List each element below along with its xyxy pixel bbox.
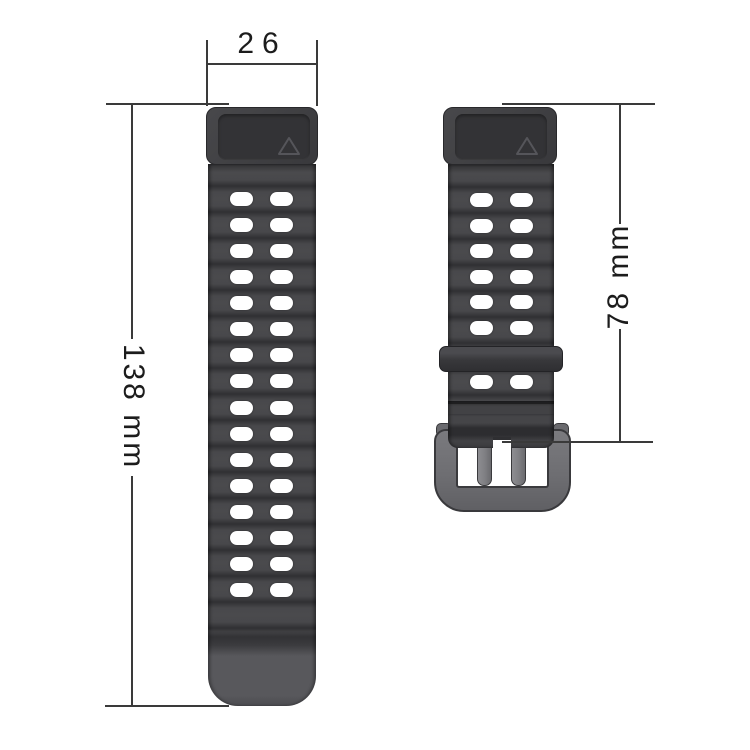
width-dimension-line <box>206 63 318 65</box>
keeper-loop <box>439 346 563 372</box>
short-extension-line-bottom <box>502 441 653 443</box>
length-dimension-line-lower <box>131 476 133 706</box>
diagram-canvas: 26 138 mm 78 mm <box>0 0 750 750</box>
length-dimension-line-upper <box>131 104 133 339</box>
long-strap-holes <box>0 0 750 750</box>
strap-tip <box>208 630 316 706</box>
length-extension-line-bottom <box>105 705 229 707</box>
lug-width-label: 26 <box>217 28 307 60</box>
strap-body <box>208 164 316 634</box>
long-strap-length-label: 138 mm <box>115 322 149 492</box>
width-extension-line-right <box>316 40 318 106</box>
short-extension-line-top <box>502 103 655 105</box>
short-strap-holes <box>0 0 750 750</box>
length-extension-line-top <box>106 103 229 105</box>
triangle-mark-icon <box>514 134 540 158</box>
buckle-center-notch <box>493 437 511 449</box>
short-strap-length-label: 78 mm <box>603 206 637 346</box>
triangle-mark-icon <box>276 134 302 158</box>
width-extension-line-left <box>206 40 208 106</box>
